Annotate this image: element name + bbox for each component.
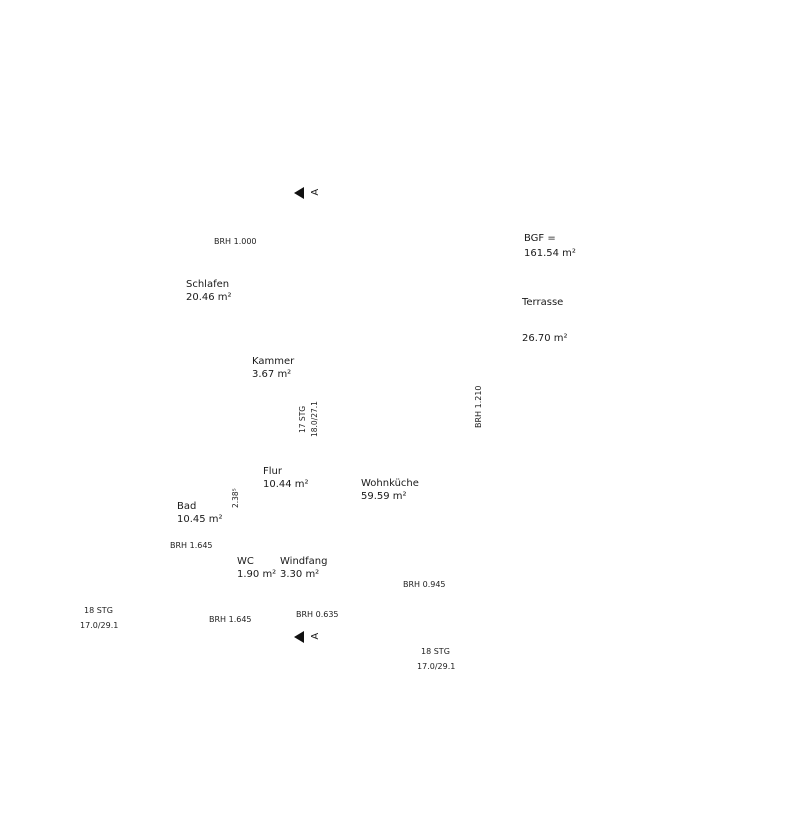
brh-label-bottom-window: BRH 1.645 [208,615,253,624]
room-name: Schlafen [186,279,232,292]
room-area: 10.45 m² [177,514,223,527]
section-letter-bottom: A [310,633,323,640]
room-label-flur: Flur 10.44 m² [262,466,310,491]
bgf-label: BGF = [524,233,556,246]
room-area-terrasse: 26.70 m² [522,333,568,346]
section-letter-top: A [310,189,323,196]
stair-left-steps-label: 18 STG [83,606,114,615]
brh-label-bath-window: BRH 1.645 [170,541,213,550]
room-area: 10.44 m² [262,479,310,492]
room-area: 3.30 m² [280,569,327,582]
room-label-kammer: Kammer 3.67 m² [252,356,294,381]
stair-exterior-rise-label: 17.0/29.1 [416,662,456,671]
brh-label-porch: BRH 0.635 [295,610,340,619]
room-name: Bad [177,501,223,514]
section-arrow-bottom-icon [294,631,304,643]
room-area: 59.59 m² [361,491,419,504]
room-label-windfang: Windfang 3.30 m² [280,556,327,581]
room-label-terrasse: Terrasse [522,297,563,310]
floor-plan: Schlafen 20.46 m² Kammer 3.67 m² Flur 10… [0,0,792,839]
room-name: Wohnküche [361,478,419,491]
room-label-wc: WC 1.90 m² [237,556,276,581]
room-area: 1.90 m² [237,569,276,582]
room-name: Flur [262,466,310,479]
brh-label-right-window: BRH 1.210 [474,381,483,433]
room-name: WC [237,556,276,569]
room-area: 20.46 m² [186,292,232,305]
room-label-schlafen: Schlafen 20.46 m² [186,279,232,304]
section-arrow-top-icon [294,187,304,199]
bgf-value: 161.54 m² [524,248,576,261]
room-area: 3.67 m² [252,369,294,382]
room-name: Kammer [252,356,294,369]
brh-label-kitchen-window: BRH 0.945 [402,580,447,589]
stair-exterior-steps-label: 18 STG [420,647,451,656]
stair-interior-rise-label: 18.0/27.1 [309,388,320,450]
room-label-bad: Bad 10.45 m² [177,501,223,526]
stair-left-rise-label: 17.0/29.1 [79,621,119,630]
brh-label-top-window: BRH 1.000 [214,237,257,246]
room-label-wohnkueche: Wohnküche 59.59 m² [361,478,419,503]
dim-label-partition: 2.38⁵ [231,477,240,519]
stair-interior-steps-label: 17 STG [297,388,308,450]
room-name: Windfang [280,556,327,569]
